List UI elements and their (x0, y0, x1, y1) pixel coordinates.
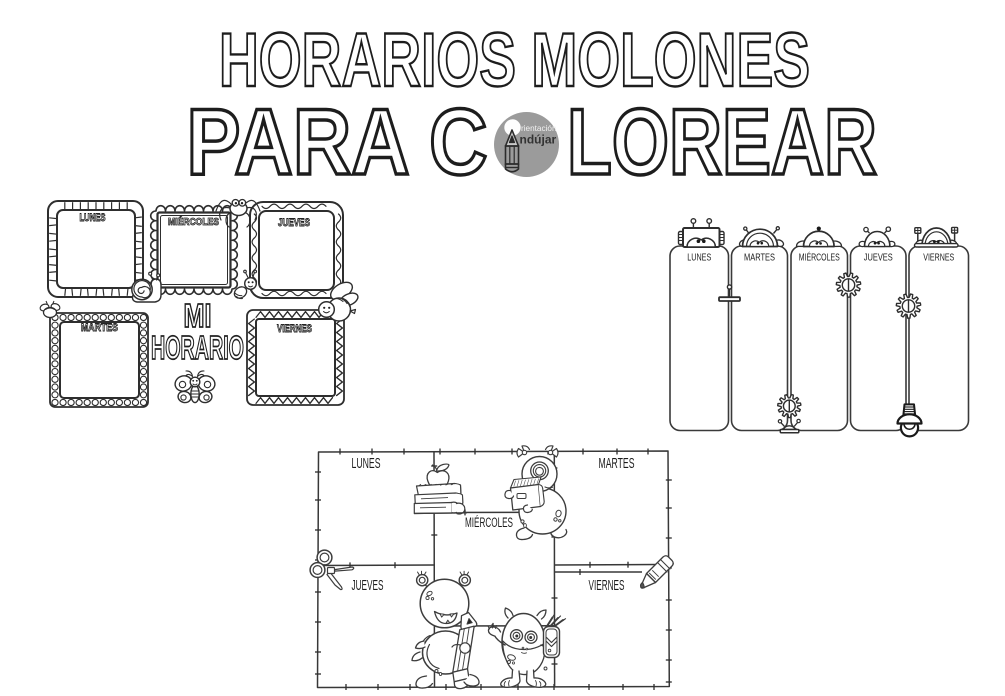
svg-text:MIÉRCOLES: MIÉRCOLES (799, 251, 840, 264)
svg-text:ndújar: ndújar (520, 133, 557, 147)
svg-text:MARTES: MARTES (744, 252, 775, 264)
svg-text:JUEVES: JUEVES (864, 252, 893, 264)
svg-text:MARTES: MARTES (81, 322, 118, 334)
svg-text:MARTES: MARTES (599, 455, 635, 472)
svg-text:LUNES: LUNES (352, 455, 381, 472)
svg-text:LOREAR: LOREAR (567, 89, 877, 194)
svg-text:VIERNES: VIERNES (277, 323, 312, 335)
svg-text:JUEVES: JUEVES (352, 577, 384, 594)
svg-text:LUNES: LUNES (687, 252, 711, 264)
svg-text:MIÉRCOLES: MIÉRCOLES (465, 515, 513, 530)
svg-text:HORARIO: HORARIO (151, 329, 244, 366)
svg-text:LUNES: LUNES (80, 212, 106, 224)
svg-text:VIERNES: VIERNES (923, 252, 954, 264)
svg-text:VIERNES: VIERNES (589, 577, 625, 594)
svg-text:PARA C: PARA C (187, 89, 488, 194)
svg-text:MIÉRCOLES: MIÉRCOLES (168, 215, 219, 228)
svg-text:JUEVES: JUEVES (278, 217, 310, 229)
